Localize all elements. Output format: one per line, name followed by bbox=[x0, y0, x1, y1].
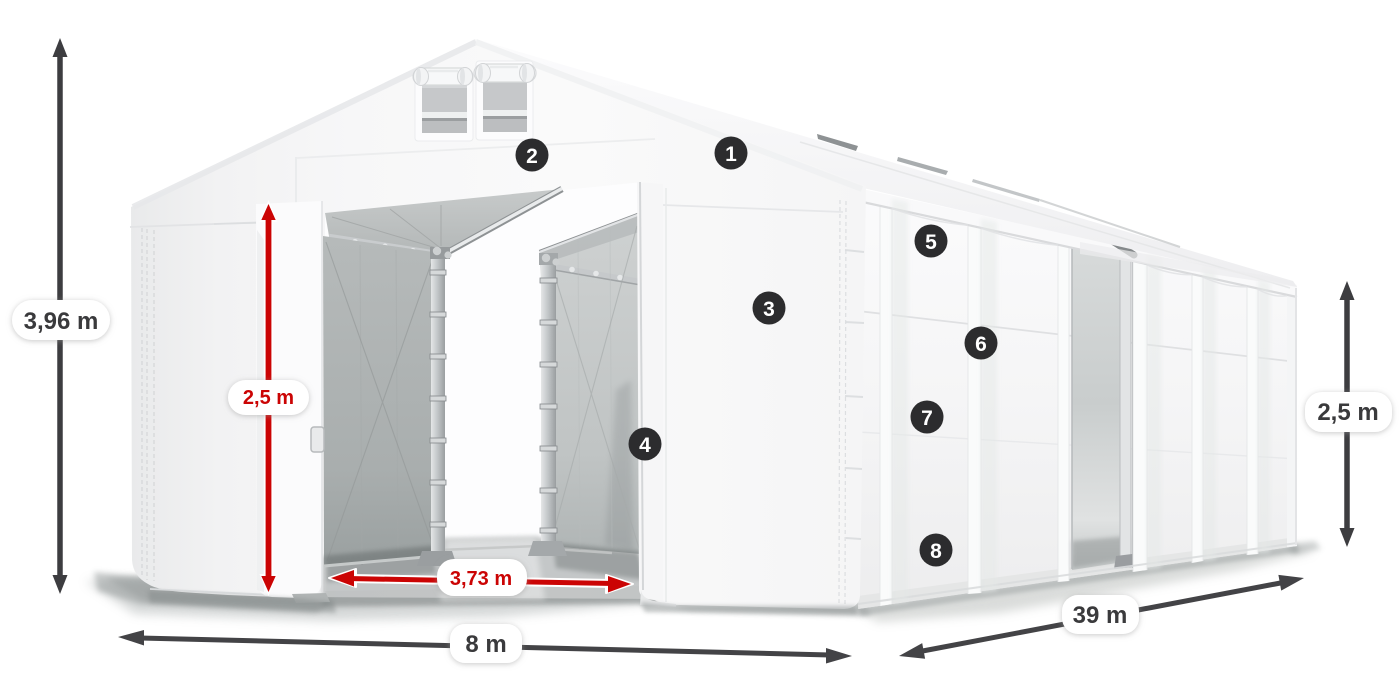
svg-text:5: 5 bbox=[925, 231, 937, 254]
svg-text:2: 2 bbox=[526, 145, 538, 168]
svg-text:2,5 m: 2,5 m bbox=[1317, 399, 1378, 426]
svg-text:7: 7 bbox=[921, 407, 933, 430]
svg-text:6: 6 bbox=[975, 333, 987, 356]
svg-text:3,73 m: 3,73 m bbox=[450, 568, 512, 590]
svg-text:3,96 m: 3,96 m bbox=[24, 308, 99, 335]
svg-text:39 m: 39 m bbox=[1073, 602, 1128, 629]
svg-text:4: 4 bbox=[639, 434, 651, 457]
svg-text:3: 3 bbox=[763, 298, 775, 321]
svg-text:2,5 m: 2,5 m bbox=[243, 387, 294, 409]
svg-text:1: 1 bbox=[725, 143, 737, 166]
svg-text:8: 8 bbox=[930, 540, 942, 563]
svg-text:8 m: 8 m bbox=[465, 631, 506, 658]
